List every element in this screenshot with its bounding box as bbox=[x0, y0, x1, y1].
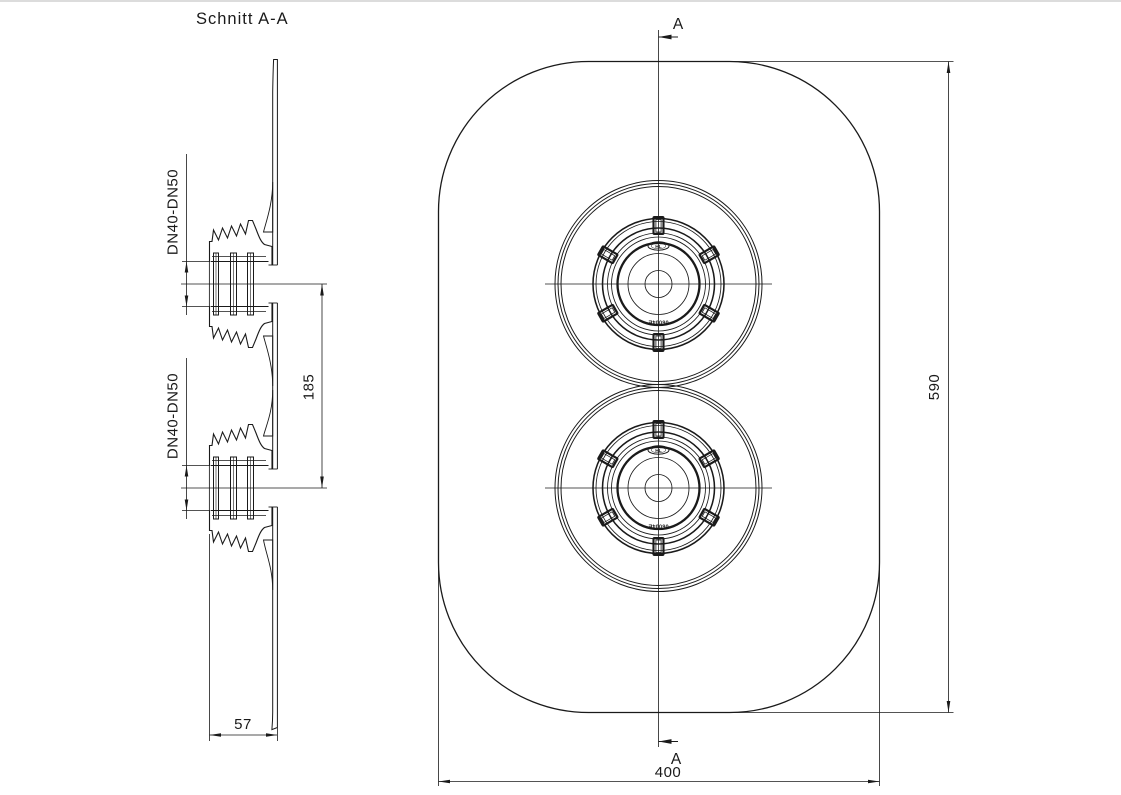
dim-185-text: 185 bbox=[301, 374, 318, 401]
section-marker-a-top: A bbox=[673, 16, 684, 33]
section-fitting-top bbox=[181, 154, 327, 348]
dim-590-text: 590 bbox=[926, 374, 943, 401]
front-view: A A 590 400 bbox=[439, 16, 954, 786]
dim-label-dn-bottom: DN40-DN50 bbox=[165, 373, 182, 459]
dim-185: 185 bbox=[301, 284, 324, 488]
plate-collar bbox=[264, 390, 273, 436]
dim-400: 400 bbox=[439, 565, 880, 786]
section-line-a-a: A A bbox=[659, 16, 684, 768]
dim-400-text: 400 bbox=[655, 764, 682, 781]
dim-57: 57 bbox=[210, 534, 278, 741]
plate-collar bbox=[264, 336, 273, 386]
section-view: DN40-DN50 DN40-DN50 185 57 bbox=[165, 60, 328, 742]
plate-collar bbox=[264, 540, 273, 590]
plate-collar bbox=[264, 182, 273, 232]
technical-drawing-svg: HL 06004E Schnitt A-A DN40-DN50 DN40-DN5… bbox=[0, 2, 1121, 795]
drawing-canvas: HL 06004E Schnitt A-A DN40-DN50 DN40-DN5… bbox=[0, 0, 1121, 795]
dim-57-text: 57 bbox=[234, 716, 252, 733]
dim-label-dn-top: DN40-DN50 bbox=[165, 169, 182, 255]
dim-590: 590 bbox=[725, 62, 954, 713]
view-title: Schnitt A-A bbox=[196, 10, 289, 28]
